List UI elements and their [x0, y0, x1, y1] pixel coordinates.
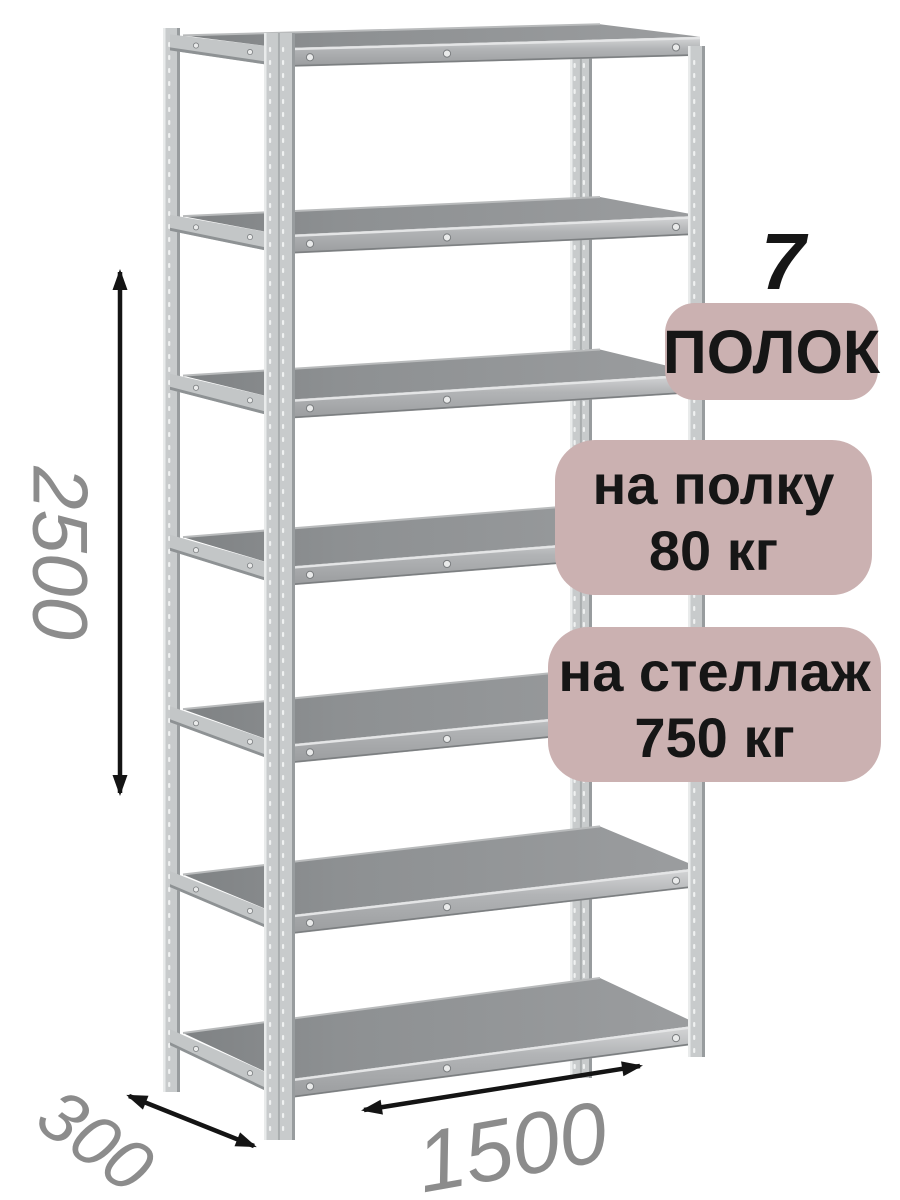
shelf-6 — [170, 826, 700, 935]
rack-post-back-left — [163, 28, 180, 1092]
per-rack-load-badge: на стеллаж 750 кг — [548, 627, 881, 782]
per-rack-load-line2: 750 кг — [634, 705, 794, 771]
shelf-3 — [170, 350, 700, 420]
product-image: 2500 300 1500 7 ПОЛОК на полку 80 кг на … — [0, 0, 900, 1200]
shelf-count-badge: ПОЛОК — [665, 303, 878, 400]
shelf-count-number: 7 — [741, 222, 825, 302]
height-dimension-label: 2500 — [15, 466, 106, 640]
per-shelf-load-badge: на полку 80 кг — [555, 440, 872, 595]
shelf-7 — [170, 978, 700, 1099]
shelf-1 — [170, 24, 700, 67]
per-shelf-load-line2: 80 кг — [649, 518, 778, 584]
per-shelf-load-line1: на полку — [593, 452, 835, 518]
shelf-count-badge-label: ПОЛОК — [663, 317, 880, 387]
rack-post-front-left — [264, 33, 295, 1140]
per-rack-load-line1: на стеллаж — [558, 639, 870, 705]
shelf-2 — [170, 197, 700, 254]
shelving-rack-illustration — [0, 0, 900, 1200]
